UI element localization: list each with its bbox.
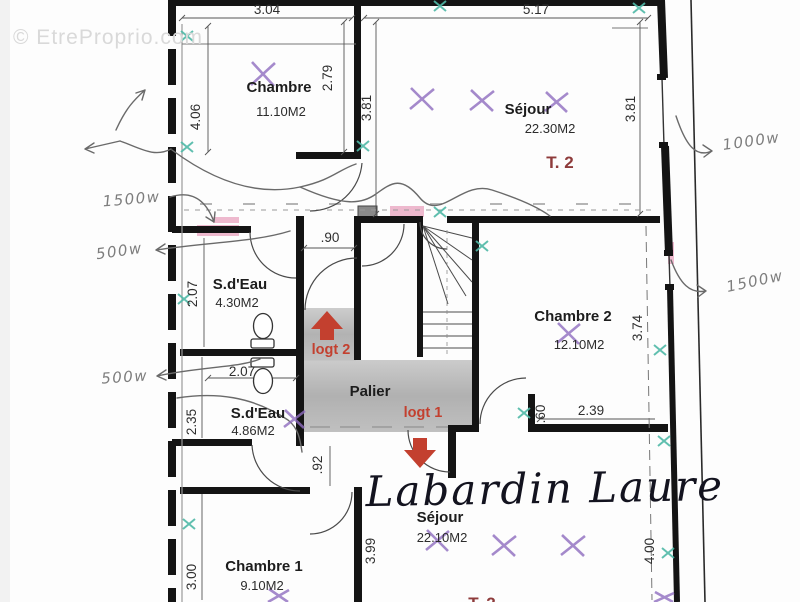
dim-3-81-left: 3.81 bbox=[359, 95, 374, 121]
dim-2-35: 2.35 bbox=[184, 409, 199, 435]
dim-3-04: 3.04 bbox=[254, 2, 281, 17]
annotation-1500w-left: 1500w bbox=[102, 188, 161, 211]
dim-3-74: 3.74 bbox=[630, 314, 645, 341]
dim-4-06: 4.06 bbox=[188, 104, 203, 130]
dim-0-92: .92 bbox=[310, 456, 325, 475]
dim-5-17: 5.17 bbox=[523, 2, 549, 17]
sketch-arrow-w bbox=[85, 141, 171, 153]
watermark-etreproprio: © EtreProprio.com bbox=[13, 26, 203, 49]
door-corridor-top bbox=[362, 224, 404, 266]
annotation-1500w-right: 1500w bbox=[725, 266, 785, 296]
sketch-arrow-1500w-right bbox=[671, 260, 706, 297]
room-sejour-top-area: 22.30M2 bbox=[525, 121, 576, 136]
door-chambre1 bbox=[310, 492, 352, 534]
unit-t2-bottom: T. 2 bbox=[468, 594, 495, 602]
unit-t2-top: T. 2 bbox=[546, 153, 573, 172]
room-sdeau-bottom-name: S.d'Eau bbox=[231, 405, 285, 422]
annotation-500w-lower: 500w bbox=[101, 366, 149, 387]
label-logt1: logt 1 bbox=[404, 405, 443, 421]
scan-edge bbox=[0, 0, 10, 602]
room-sdeau-top-name: S.d'Eau bbox=[213, 276, 267, 293]
room-sejour-top-name: Séjour bbox=[505, 101, 552, 118]
dim-2-39: 2.39 bbox=[578, 403, 604, 418]
room-chambre1-name: Chambre 1 bbox=[225, 558, 303, 575]
dim-0-90: .90 bbox=[321, 230, 340, 245]
room-palier-name: Palier bbox=[350, 383, 391, 400]
room-sejour-bottom-area: 22.10M2 bbox=[417, 530, 468, 545]
wall-face-lines bbox=[182, 28, 648, 44]
dim-2-79: 2.79 bbox=[320, 65, 335, 91]
watermark-agent: Labardin Laure bbox=[364, 461, 724, 516]
room-sdeau-bottom-area: 4.86M2 bbox=[231, 423, 274, 438]
room-chambre-top-area: 11.10M2 bbox=[256, 104, 306, 119]
sketch-swoosh-2 bbox=[300, 183, 550, 216]
room-sejour-bottom-name: Séjour bbox=[417, 509, 464, 526]
door-chambre-top bbox=[310, 163, 362, 211]
door-sdeau-bottom bbox=[252, 445, 300, 491]
window-upper bbox=[657, 74, 668, 148]
room-chambre2-name: Chambre 2 bbox=[534, 308, 612, 325]
dim-4-00: 4.00 bbox=[642, 538, 657, 564]
sketch-arrow-1500w-left bbox=[170, 195, 215, 222]
sketch-arrow-ne bbox=[116, 90, 145, 130]
floor-plan-drawing: © EtreProprio.com Labardin Laure Chambre… bbox=[0, 0, 800, 602]
label-logt2: logt 2 bbox=[312, 342, 351, 358]
dim-2-07-h: 2.07 bbox=[229, 364, 255, 379]
dim-3-81-right: 3.81 bbox=[623, 96, 638, 122]
dim-3-99: 3.99 bbox=[363, 538, 378, 564]
room-chambre1-area: 9.10M2 bbox=[240, 578, 283, 593]
toilet-upper bbox=[251, 314, 274, 349]
floor-plan-scan: © EtreProprio.com Labardin Laure Chambre… bbox=[0, 0, 800, 602]
room-sdeau-top-area: 4.30M2 bbox=[215, 295, 258, 310]
logt1-down-arrow bbox=[404, 438, 436, 468]
staircase bbox=[423, 226, 472, 354]
room-chambre2-area: 12.10M2 bbox=[554, 337, 605, 352]
room-chambre-top-name: Chambre bbox=[246, 79, 311, 96]
dim-2-07-v: 2.07 bbox=[185, 281, 200, 307]
dim-0-60: .60 bbox=[533, 405, 548, 424]
annotation-500w-left: 500w bbox=[95, 239, 144, 263]
door-logt2 bbox=[305, 258, 357, 310]
dim-3-00: 3.00 bbox=[184, 564, 199, 590]
window-lower bbox=[664, 250, 674, 290]
annotation-1000w-right: 1000w bbox=[721, 128, 781, 154]
right-outer-wall bbox=[657, 0, 705, 602]
